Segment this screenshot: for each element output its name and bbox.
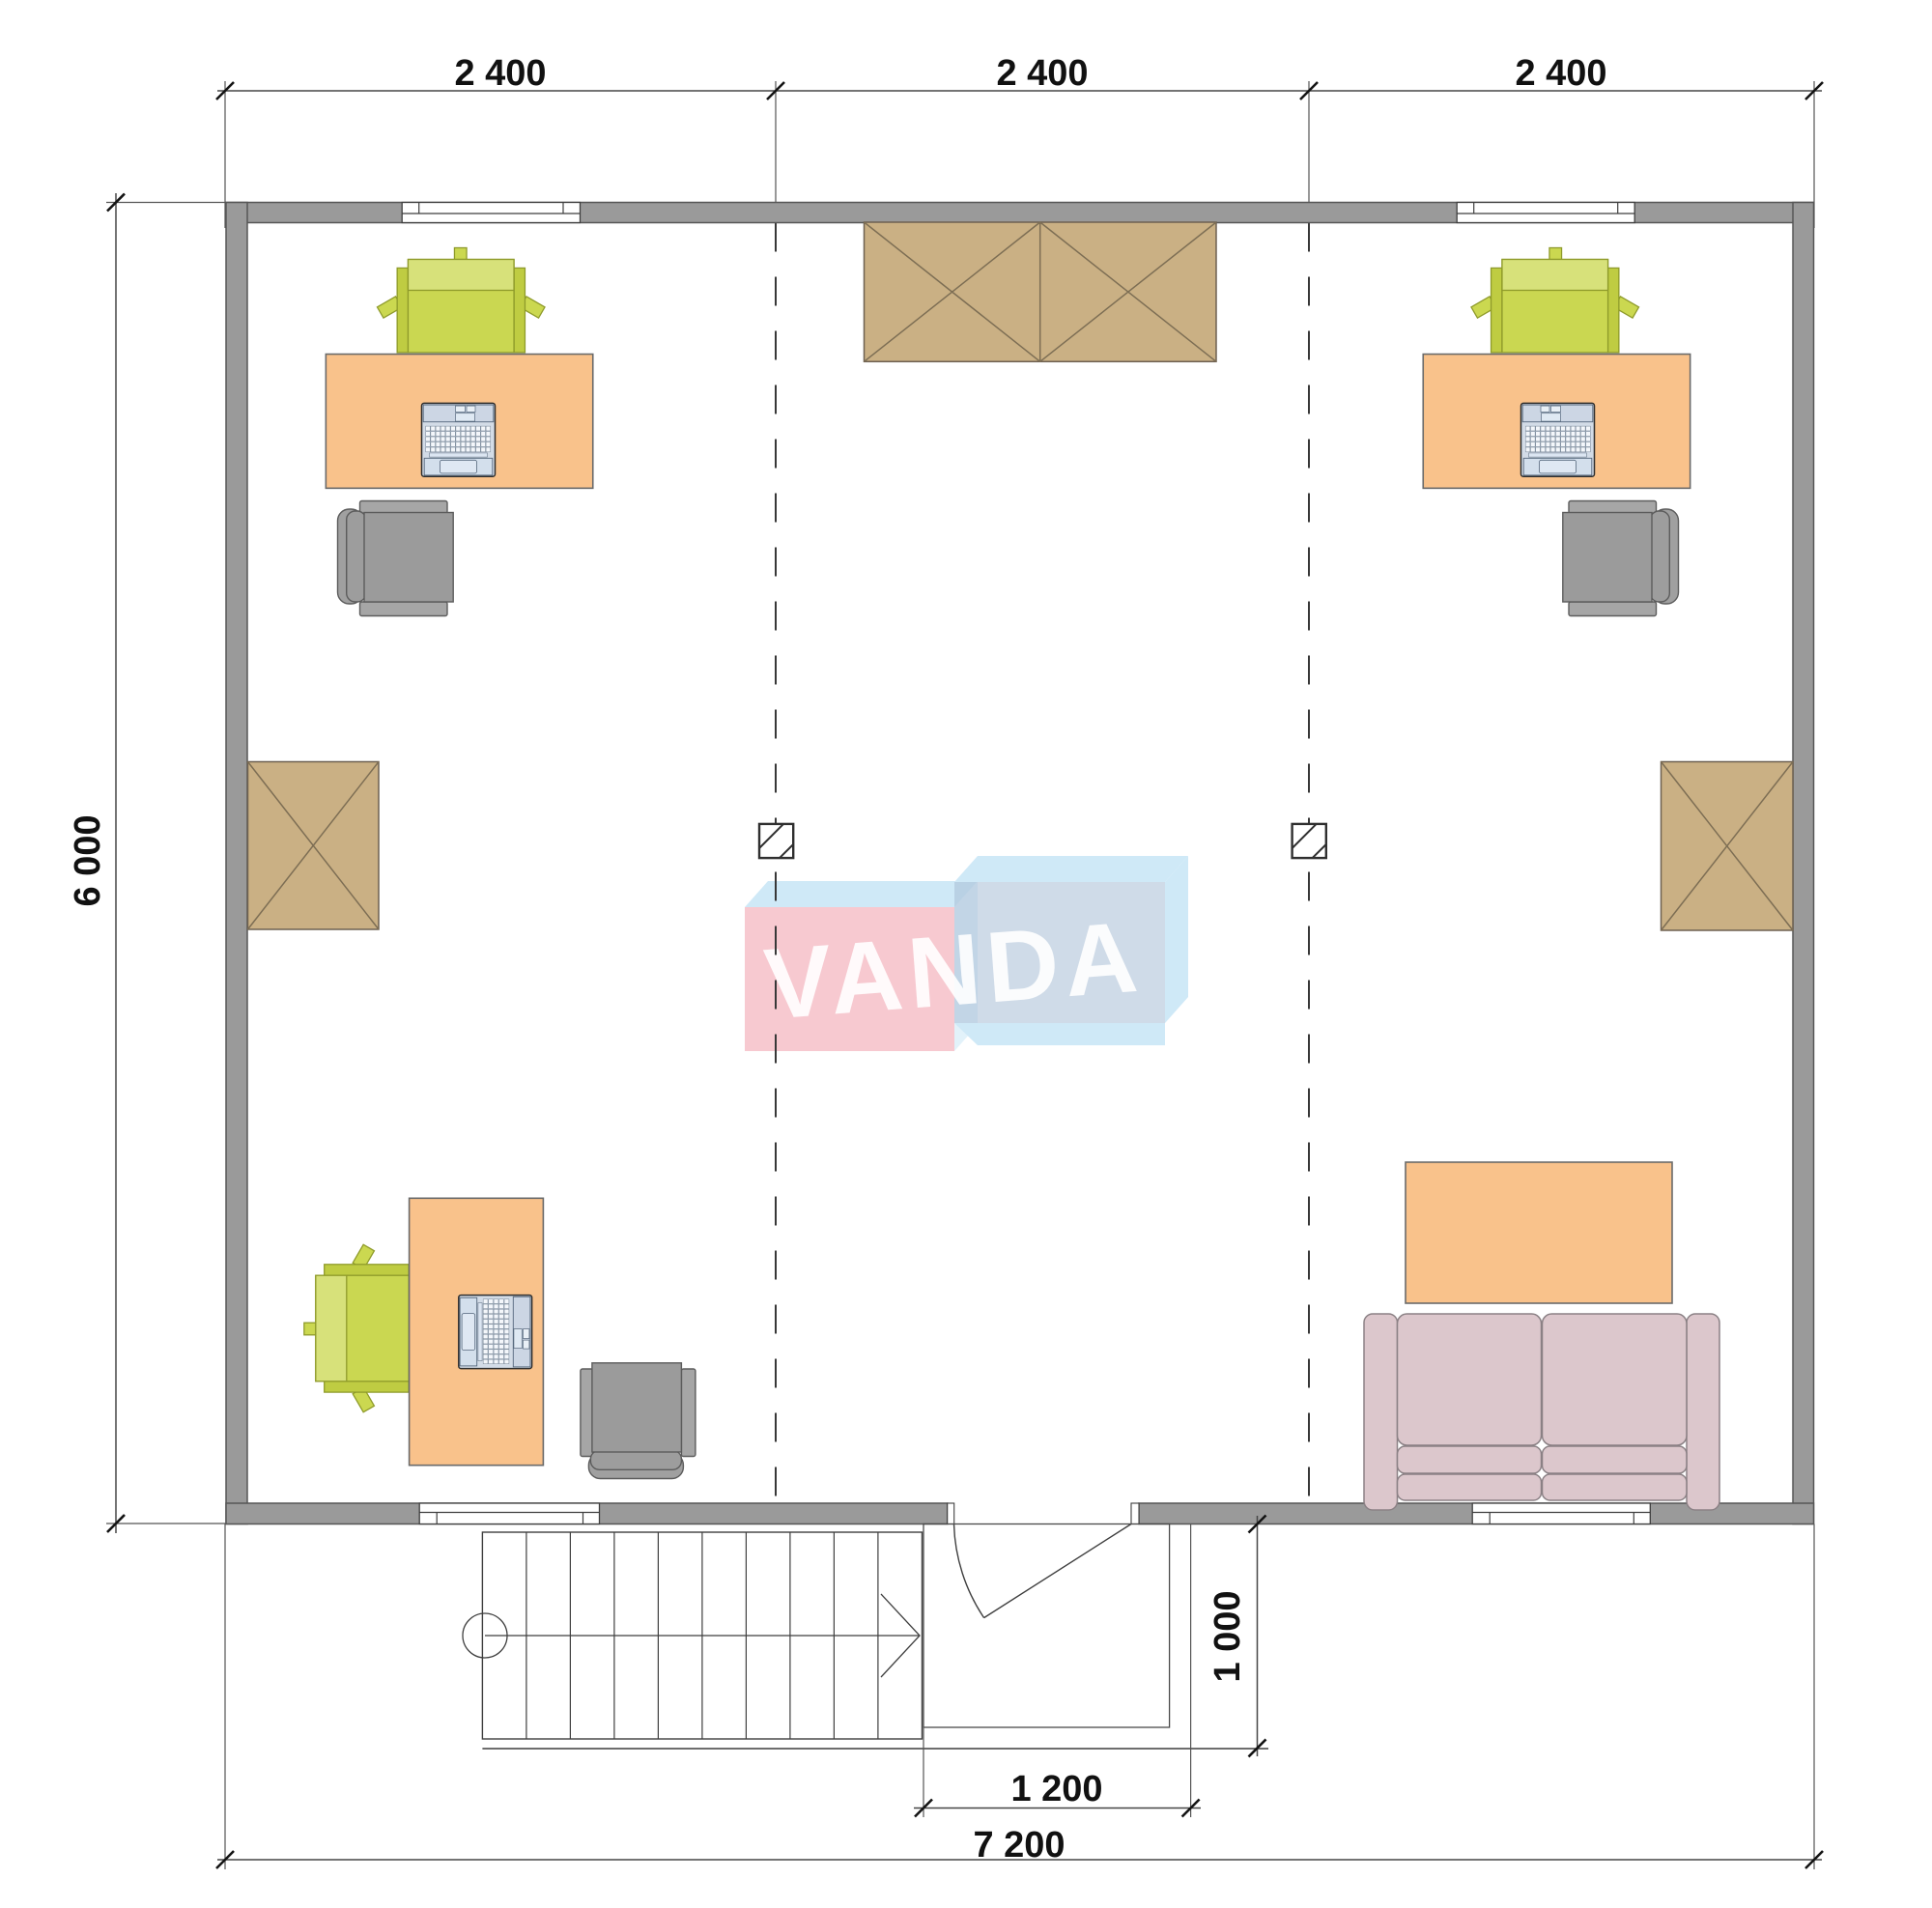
svg-text:6 000: 6 000 (68, 814, 108, 906)
svg-text:1 200: 1 200 (1010, 1769, 1102, 1809)
svg-text:2 400: 2 400 (996, 53, 1088, 94)
svg-text:2 400: 2 400 (454, 53, 546, 94)
svg-text:2 400: 2 400 (1515, 53, 1606, 94)
svg-text:1 000: 1 000 (1207, 1590, 1248, 1682)
svg-text:7 200: 7 200 (973, 1825, 1065, 1865)
